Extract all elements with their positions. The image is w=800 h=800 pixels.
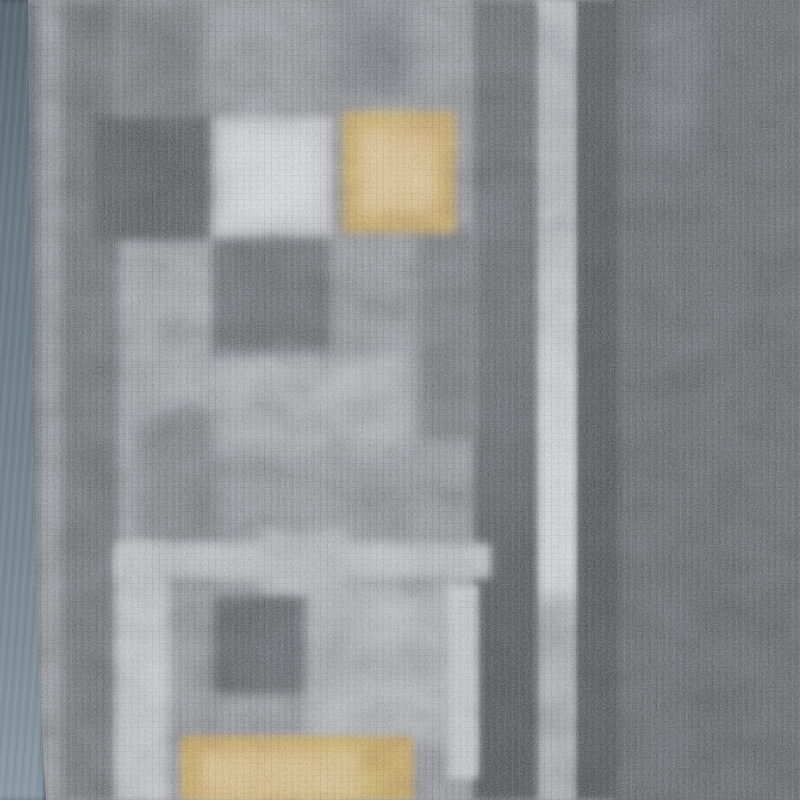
rug-binding-edge	[0, 0, 48, 800]
rug-photograph	[0, 0, 800, 800]
rug-edge-layer	[0, 0, 800, 800]
